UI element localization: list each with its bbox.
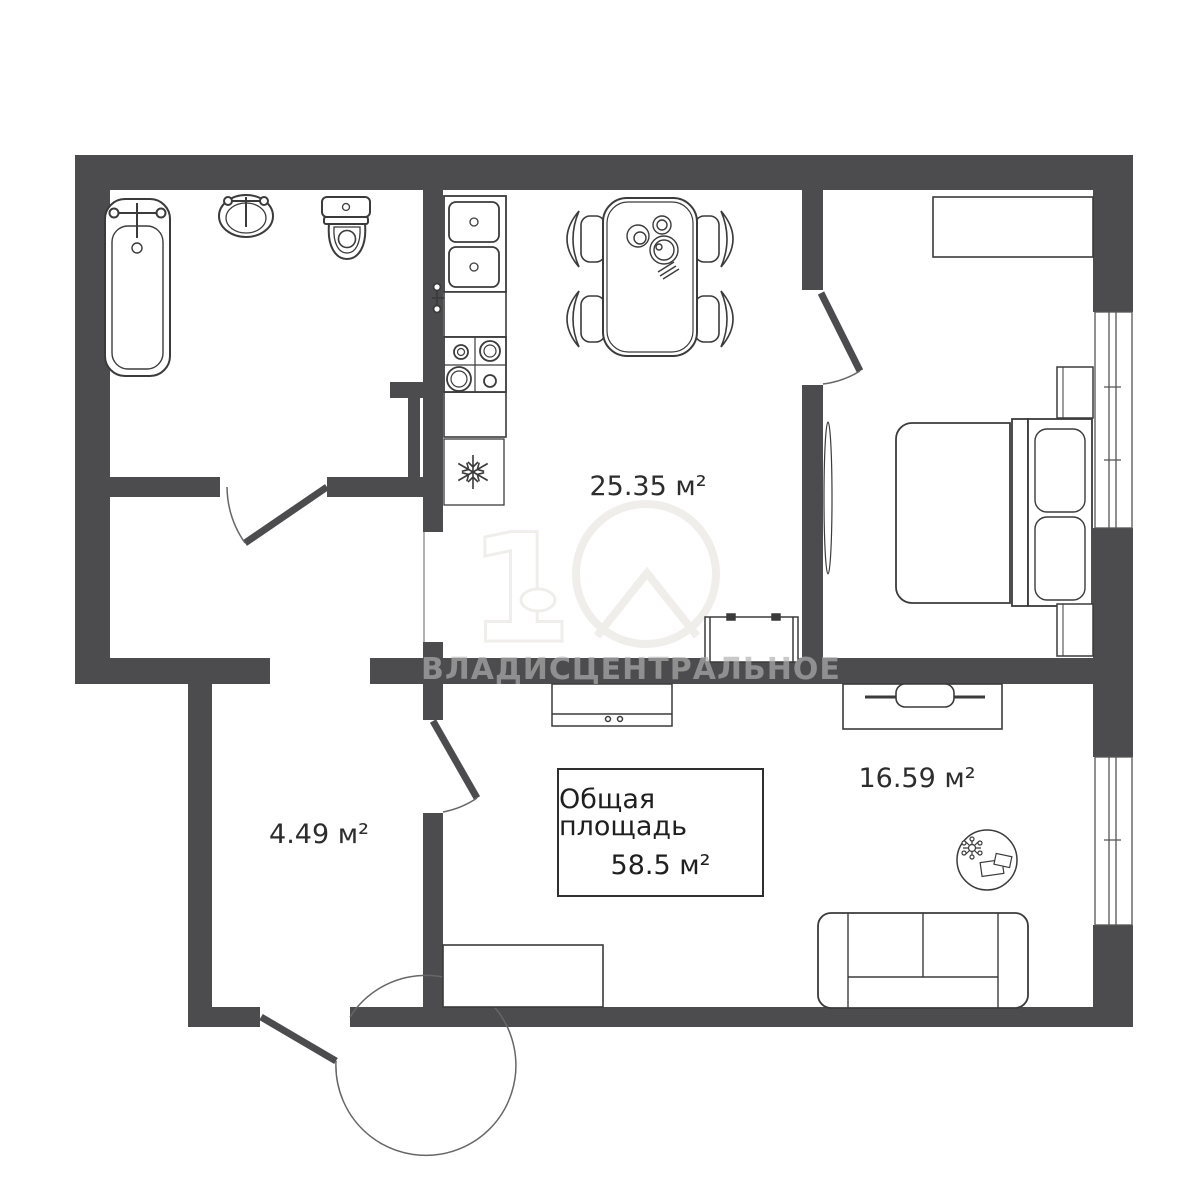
plant-table [957, 830, 1017, 890]
chair [567, 291, 605, 347]
bathroom-sink [219, 195, 273, 237]
chair [695, 291, 733, 347]
bed [896, 419, 1092, 606]
room-label-hall: 4.49 м² [269, 819, 369, 850]
total-area-box: Общая площадь 58.5 м² [557, 768, 764, 897]
stove [444, 337, 506, 392]
wardrobe [933, 197, 1093, 257]
floor-plan-drawing: 1 [0, 0, 1184, 1184]
watermark-text: ВЛАДИСЦЕНТРАЛЬНОЕ [421, 652, 841, 687]
total-area-value: 58.5 м² [611, 852, 711, 879]
room-label-living: 16.59 м² [858, 763, 975, 794]
hall-room-door [433, 721, 477, 812]
nightstand [1057, 604, 1093, 656]
pillow [1035, 429, 1085, 512]
bathroom-door [227, 487, 327, 543]
bedroom-door [821, 293, 860, 384]
logo-digit: 1 [468, 503, 572, 677]
nightstand [1057, 367, 1093, 418]
wall-mirror [824, 422, 832, 574]
chair [567, 211, 605, 267]
sofa [818, 913, 1028, 1008]
room-label-kitchen: 25.35 м² [589, 471, 706, 502]
toilet [322, 197, 370, 259]
cabinet [443, 945, 603, 1007]
dining-table [567, 198, 733, 356]
house-logo-icon: 1 [468, 503, 716, 677]
tv-stand [552, 684, 672, 726]
total-area-title: Общая площадь [559, 786, 762, 840]
desk [843, 684, 1002, 729]
pillow [1035, 517, 1085, 600]
living-window [1095, 757, 1132, 925]
chair [695, 211, 733, 267]
floor-plan: 1 [0, 0, 1184, 1184]
bedroom-window [1095, 312, 1132, 528]
bathtub [105, 199, 170, 376]
fridge [444, 439, 504, 505]
